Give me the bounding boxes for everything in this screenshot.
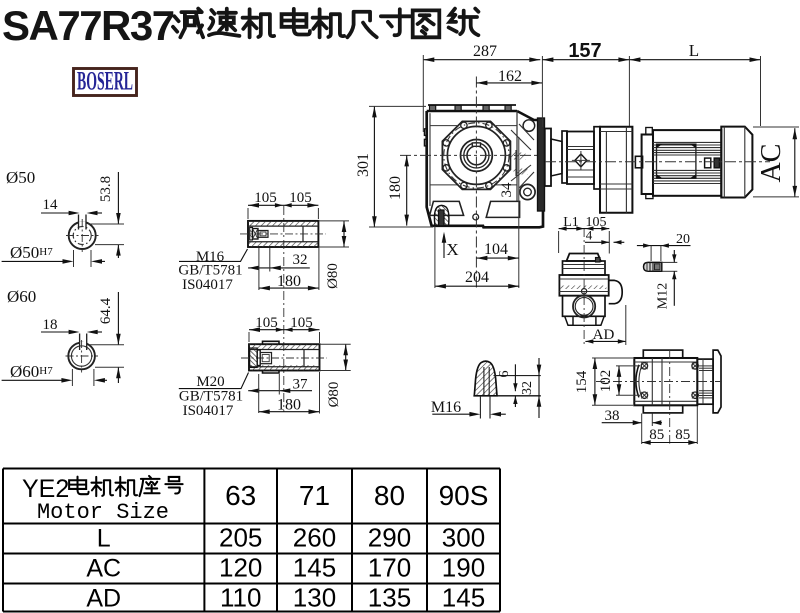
svg-text:290: 290 [368, 523, 411, 553]
svg-text:AD: AD [86, 585, 121, 613]
svg-text:80: 80 [374, 480, 405, 511]
svg-text:71: 71 [299, 480, 330, 511]
svg-text:120: 120 [219, 553, 262, 583]
svg-text:190: 190 [442, 553, 485, 583]
svg-text:YE2: YE2 [22, 475, 69, 503]
svg-text:145: 145 [442, 583, 485, 613]
svg-text:135: 135 [368, 583, 411, 613]
svg-text:205: 205 [219, 523, 262, 553]
svg-text:300: 300 [442, 523, 485, 553]
svg-text:63: 63 [225, 480, 256, 511]
svg-text:90S: 90S [439, 480, 489, 511]
svg-text:260: 260 [293, 523, 336, 553]
svg-text:AC: AC [86, 555, 121, 583]
svg-text:L: L [97, 525, 111, 553]
svg-text:110: 110 [220, 583, 261, 613]
svg-text:145: 145 [293, 553, 336, 583]
svg-text:Motor Size: Motor Size [37, 500, 169, 525]
svg-text:170: 170 [368, 553, 411, 583]
svg-text:130: 130 [293, 583, 336, 613]
